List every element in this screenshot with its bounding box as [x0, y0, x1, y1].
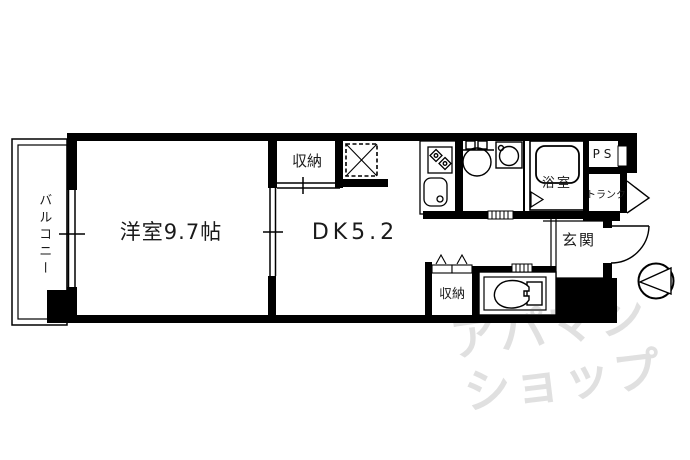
pipe-space-label: PS [589, 148, 619, 161]
closet-bottom-label: 収納 [430, 288, 474, 302]
floorplan-page: アパマン ショップ バルコニー 洋室9.7帖 DK5.2 収納 収納 浴室 玄関… [0, 0, 690, 460]
western-room-label: 洋室9.7帖 [91, 221, 251, 244]
trunk-label: トランク [586, 190, 622, 201]
washroom-door-icon [488, 211, 513, 219]
trunk-door-icon [627, 181, 649, 213]
stove-icon [428, 147, 452, 173]
dk-label: DK5.2 [300, 221, 410, 245]
closet-top-label: 収納 [276, 153, 338, 170]
meter-box [618, 146, 627, 166]
washbasin-icon [463, 141, 494, 176]
kitchen-sink-icon [424, 178, 447, 206]
washing-machine-icon [496, 142, 522, 168]
closet-sliding-door-icon [277, 177, 340, 194]
bottom-closet-door-icon [432, 255, 472, 273]
toilet-door-icon [512, 264, 532, 272]
entrance-door-icon [611, 226, 649, 263]
bathroom-door-icon [531, 192, 543, 207]
window-icon [59, 190, 85, 287]
bathroom-label: 浴室 [531, 177, 583, 191]
balcony-label: バルコニー [36, 188, 50, 283]
sliding-partition-icon [263, 188, 283, 276]
refrigerator-space-icon [346, 144, 377, 176]
entrance-label: 玄関 [556, 232, 602, 249]
